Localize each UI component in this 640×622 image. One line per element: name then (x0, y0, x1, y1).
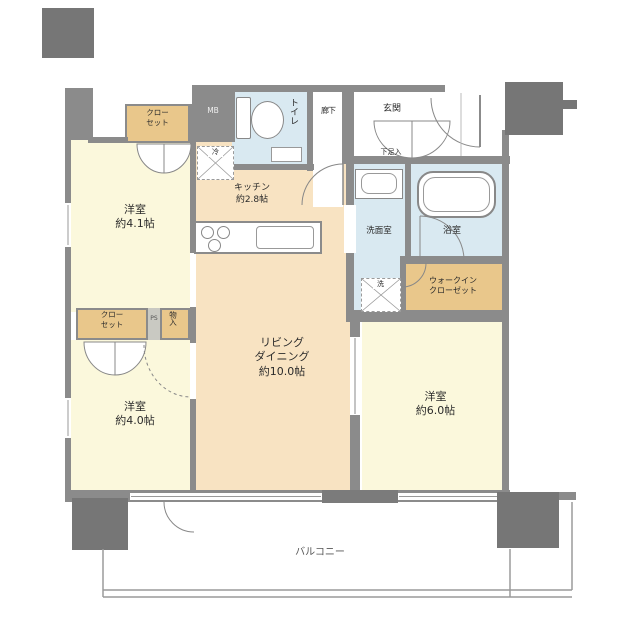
pipe-space-floor (148, 308, 160, 340)
bath-label: 浴室 (430, 226, 474, 238)
hallway-label: 廊下 (313, 106, 343, 116)
wall-stub-bottom-right (558, 492, 576, 500)
entrance-door-swing-arc (431, 98, 480, 147)
room-name: 洋室 (124, 400, 146, 413)
room-name: 浴室 (443, 226, 461, 236)
living-dining-label: リビング ダイニング 約10.0帖 (238, 336, 326, 379)
stove-burner-icon (208, 239, 221, 252)
kitchen-label: キッチン 約2.8帖 (214, 183, 290, 206)
room-name-line2: クローゼット (429, 286, 477, 295)
pillar-bottom-left (72, 498, 128, 550)
door-opening-bedroom-right (350, 337, 360, 415)
washroom-label: 洗面室 (353, 226, 405, 237)
room-size: 約4.1帖 (115, 217, 155, 230)
wall-washroom-bath (405, 164, 411, 262)
stove-burner-icon (217, 226, 230, 239)
pillar-top-left (42, 8, 94, 58)
room-name: 洗面室 (366, 226, 392, 236)
label-text: 洗 (377, 280, 384, 288)
window-bottom-left (130, 493, 322, 500)
floor-plan: 洋室 約4.1帖 洋室 約4.0帖 洋室 約6.0帖 リビング ダイニング 約1… (0, 0, 640, 622)
door-opening-bedroom1 (190, 253, 196, 307)
wall-right (502, 130, 509, 497)
door-opening-bedroom2 (190, 343, 196, 399)
room-name-line2: セット (146, 118, 169, 127)
kitchen-sink-icon (256, 226, 314, 249)
meter-box-label: MB (196, 106, 230, 116)
room-name: 洋室 (124, 203, 146, 216)
room-size: 約2.8帖 (236, 195, 268, 205)
shoe-cabinet-label: 下足入 (368, 148, 414, 157)
stove-burner-icon (201, 226, 214, 239)
toilet-tank-icon (236, 97, 251, 139)
room-name: 洋室 (425, 390, 447, 403)
room-size: 約6.0帖 (416, 404, 456, 417)
refrigerator-space-label: 冷 (208, 148, 223, 157)
toilet-mat-icon (271, 147, 302, 162)
label-text: PS (150, 315, 157, 322)
pillar-top-right-tab (563, 100, 577, 109)
room-name-line1: ウォークイン (429, 276, 477, 285)
room-name: 玄関 (383, 104, 401, 114)
label-text: 冷 (212, 148, 219, 156)
room-name: 下足入 (381, 148, 402, 156)
washer-space-label: 洗 (373, 280, 388, 289)
washbasin-icon (355, 169, 403, 199)
room-name: 廊下 (321, 106, 335, 115)
room-name: キッチン (234, 183, 270, 193)
walk-in-closet-label: ウォークイン クローゼット (410, 276, 496, 297)
label-text: MB (207, 106, 219, 115)
room-size: 約10.0帖 (259, 365, 306, 378)
wall-bedroom1-top (88, 137, 128, 143)
bedroom-top-left-label: 洋室 約4.1帖 (95, 203, 175, 232)
balcony-door-swing-arc (164, 502, 194, 532)
window-bottom-right (398, 493, 498, 500)
window-bedroom1-left (65, 203, 71, 247)
bathtub-inner-icon (423, 177, 490, 212)
storage-label: 物入 (169, 311, 177, 326)
bedroom-bottom-left-label: 洋室 約4.0帖 (95, 400, 175, 429)
room-name: バルコニー (295, 547, 345, 558)
entrance-label: 玄関 (370, 104, 414, 116)
bathtub-icon (417, 171, 496, 218)
wall-toilet-right (307, 91, 313, 171)
room-name-line1: リビング (260, 336, 304, 349)
entrance-door-leaf (479, 95, 481, 147)
wall-hall-entrance (342, 85, 354, 164)
balcony-label: バルコニー (270, 546, 370, 559)
room-name-line1: クロー (146, 108, 169, 117)
window-bedroom2-left (65, 398, 71, 438)
bedroom-right-label: 洋室 約6.0帖 (393, 390, 478, 419)
room-name-line1: クロー (101, 310, 124, 319)
shoe-cabinet-door-fan-icon (412, 121, 450, 158)
pipe-space-label: PS (147, 315, 161, 323)
wall-wic-top (400, 256, 509, 264)
closet-top-label: クロー セット (129, 108, 186, 128)
washbasin-bowl-icon (361, 173, 397, 194)
room-name-line2: セット (101, 320, 124, 329)
wall-bottom-dark-segment (322, 490, 398, 503)
pillar-top-right (505, 82, 563, 135)
toilet-bowl-icon (251, 101, 284, 139)
room-name: 物入 (169, 311, 178, 326)
wall-entrance-bottom (350, 156, 510, 164)
room-size: 約4.0帖 (115, 414, 155, 427)
closet-middle-label: クロー セット (79, 310, 145, 330)
pillar-bottom-right (497, 492, 559, 548)
toilet-label: トイレ (288, 98, 297, 125)
wall-left-thick (71, 88, 93, 140)
room-name: トイレ (288, 98, 298, 125)
room-name-line2: ダイニング (255, 350, 310, 363)
wall-toilet-bottom (228, 164, 314, 170)
